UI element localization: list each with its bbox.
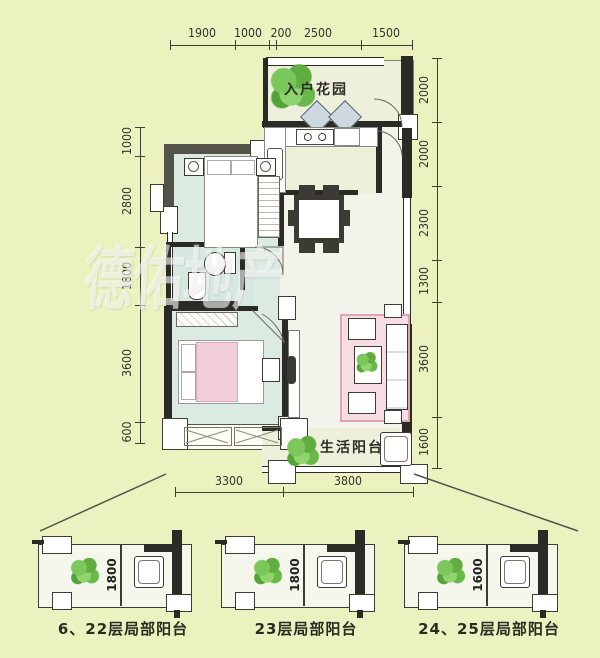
armchair-icon bbox=[348, 318, 376, 340]
dim-label: 1800 bbox=[105, 558, 119, 591]
mini-caption: 24、25层局部阳台 bbox=[418, 618, 560, 639]
mini-diagram-floors-24-25: 1600 24、25层局部阳台 bbox=[398, 528, 573, 638]
dining-chair bbox=[343, 210, 350, 226]
lamp-icon bbox=[260, 161, 271, 172]
dim-label: 1600 bbox=[417, 428, 431, 456]
pillow bbox=[207, 160, 231, 175]
side-table bbox=[384, 304, 402, 318]
watermark: 德佑地产 bbox=[80, 224, 287, 323]
dim-label: 200 bbox=[270, 26, 291, 40]
dim-label: 1900 bbox=[188, 26, 216, 40]
pipe-bracket bbox=[150, 184, 164, 212]
column bbox=[42, 536, 72, 554]
wall bbox=[164, 306, 172, 426]
column bbox=[408, 536, 438, 554]
washing-machine-icon bbox=[317, 556, 347, 588]
washing-machine-icon bbox=[380, 432, 412, 466]
wall bbox=[357, 610, 363, 618]
dining-table-icon bbox=[294, 195, 344, 243]
mini-diagram-floors-6-22: 1800 6、22层局部阳台 bbox=[32, 528, 207, 638]
mini-diagram-floor-23: 1800 23层局部阳台 bbox=[215, 528, 390, 638]
living-balcony-label: 生活阳台 bbox=[320, 437, 384, 457]
wall bbox=[32, 540, 44, 544]
kitchen-cabinet bbox=[334, 128, 360, 146]
pillow bbox=[181, 344, 196, 372]
wall bbox=[215, 540, 227, 544]
column bbox=[52, 592, 72, 610]
stove-icon bbox=[296, 129, 334, 145]
dim-label: 3300 bbox=[215, 474, 243, 488]
dim-label: 1300 bbox=[417, 267, 431, 295]
dim-label: 3600 bbox=[417, 345, 431, 373]
dim-label: 2800 bbox=[120, 187, 134, 215]
wall bbox=[486, 544, 488, 606]
dim-label: 600 bbox=[120, 421, 134, 442]
side-table bbox=[384, 410, 402, 424]
dim-label: 1800 bbox=[288, 558, 302, 591]
mini-caption: 6、22层局部阳台 bbox=[58, 618, 188, 639]
wall bbox=[355, 530, 365, 594]
dim-label: 2000 bbox=[417, 140, 431, 168]
pillow bbox=[231, 160, 255, 175]
washing-machine-icon bbox=[500, 556, 530, 588]
mini-caption: 23层局部阳台 bbox=[255, 618, 358, 639]
plant-icon bbox=[436, 558, 466, 586]
dim-label: 1000 bbox=[234, 26, 262, 40]
dim-label: 3600 bbox=[120, 349, 134, 377]
entry-garden-label: 入户花园 bbox=[284, 79, 348, 99]
dim-label: 2500 bbox=[304, 26, 332, 40]
wall bbox=[263, 58, 268, 128]
tv-icon bbox=[287, 356, 296, 384]
wall bbox=[303, 544, 305, 606]
wall bbox=[164, 144, 174, 208]
desk bbox=[262, 358, 280, 382]
dim-label: 1000 bbox=[120, 127, 134, 155]
wall bbox=[398, 540, 410, 544]
wall bbox=[172, 530, 182, 594]
dim-label: 1600 bbox=[471, 558, 485, 591]
plant-icon bbox=[253, 558, 283, 586]
dim-label: 2000 bbox=[417, 76, 431, 104]
wall bbox=[402, 128, 412, 198]
column bbox=[418, 592, 438, 610]
washing-machine-icon bbox=[134, 556, 164, 588]
plant-icon bbox=[356, 352, 378, 374]
sofa-icon bbox=[386, 324, 408, 410]
bed-2-blanket bbox=[196, 342, 238, 402]
dim-label: 1500 bbox=[372, 26, 400, 40]
column bbox=[400, 464, 428, 484]
plant-icon bbox=[70, 558, 100, 586]
wall bbox=[540, 610, 546, 618]
wall bbox=[174, 610, 180, 618]
dim-label: 2300 bbox=[417, 209, 431, 237]
bay-window-frame bbox=[234, 427, 282, 446]
lamp-icon bbox=[188, 161, 199, 172]
pillow bbox=[181, 372, 196, 400]
column bbox=[225, 536, 255, 554]
armchair-icon bbox=[348, 392, 376, 414]
column bbox=[235, 592, 255, 610]
bay-window-frame bbox=[184, 427, 232, 446]
floorplan-canvas: 入户花园 生活阳台 德佑地产 1900 1000 200 2500 1500 3… bbox=[0, 0, 600, 658]
window bbox=[403, 198, 411, 324]
wall bbox=[120, 544, 122, 606]
plant-icon bbox=[286, 436, 320, 468]
dim-label: 3800 bbox=[334, 474, 362, 488]
wall bbox=[538, 530, 548, 594]
